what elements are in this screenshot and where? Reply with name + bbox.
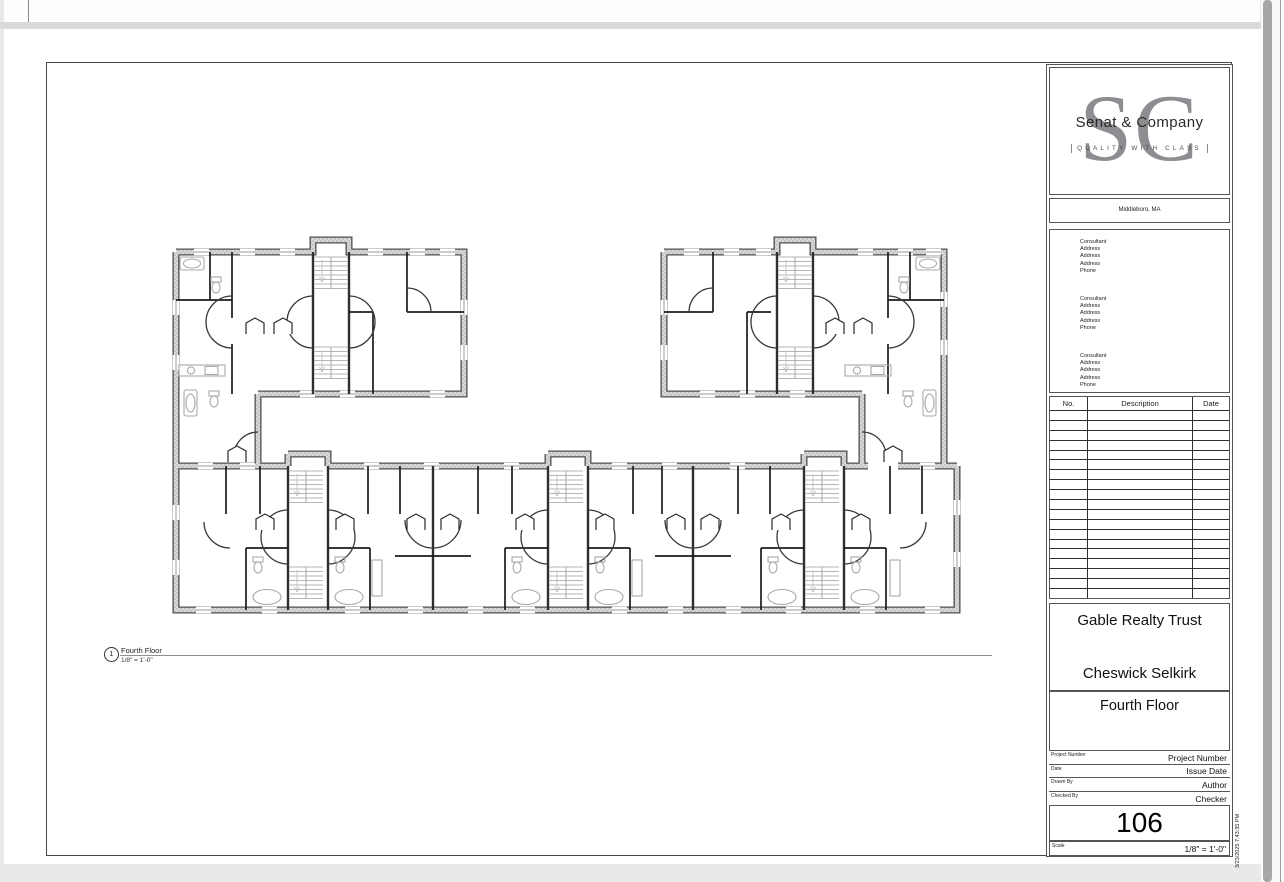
page-gap bbox=[0, 22, 1262, 29]
scrollbar-thumb[interactable] bbox=[1263, 0, 1272, 882]
revision-row bbox=[1050, 510, 1229, 520]
sheet-name: Fourth Floor bbox=[1050, 698, 1229, 714]
meta-fields: Project Number Project Number Date Issue… bbox=[1049, 751, 1230, 805]
revision-row bbox=[1050, 421, 1229, 431]
revision-row bbox=[1050, 520, 1229, 530]
client-name: Gable Realty Trust bbox=[1050, 612, 1229, 629]
scale-label: Scale bbox=[1052, 843, 1065, 849]
meta-field-value: Project Number bbox=[1168, 753, 1227, 763]
revision-row bbox=[1050, 549, 1229, 559]
view-number-bubble: 1 bbox=[104, 647, 119, 662]
company-tagline: QUALITY WITH CLASS bbox=[1071, 144, 1208, 153]
scale-value: 1/8" = 1'-0" bbox=[1185, 844, 1226, 854]
consultant-block: Consultant Address Address Address Phone bbox=[1080, 296, 1229, 332]
revision-row bbox=[1050, 559, 1229, 569]
revision-rows bbox=[1050, 411, 1229, 598]
consultant-line: Address bbox=[1080, 318, 1229, 325]
sheet-number-box: 106 bbox=[1049, 805, 1230, 841]
meta-field-value: Issue Date bbox=[1186, 766, 1227, 776]
meta-field-row: Drawn By Author bbox=[1049, 778, 1230, 792]
revision-row bbox=[1050, 540, 1229, 550]
revision-table: No. Description Date bbox=[1049, 396, 1230, 599]
company-location-box: Middleboro, MA bbox=[1049, 198, 1230, 223]
revision-row bbox=[1050, 490, 1229, 500]
meta-field-label: Checked By bbox=[1051, 793, 1078, 799]
consultant-block: Consultant Address Address Address Phone bbox=[1080, 353, 1229, 389]
meta-field-value: Author bbox=[1202, 780, 1227, 790]
consultant-line: Address bbox=[1080, 253, 1229, 260]
title-block: SC Senat & Company QUALITY WITH CLASS Mi… bbox=[1046, 64, 1233, 857]
view-title: 1 Fourth Floor 1/8" = 1'-0" bbox=[104, 643, 1004, 669]
consultant-line: Address bbox=[1080, 310, 1229, 317]
consultant-line: Address bbox=[1080, 246, 1229, 253]
logo-box: SC Senat & Company QUALITY WITH CLASS bbox=[1049, 67, 1230, 195]
consultants-box: Consultant Address Address Address Phone… bbox=[1049, 229, 1230, 393]
previous-page-border-line bbox=[28, 0, 29, 22]
company-name: Senat & Company bbox=[1050, 114, 1229, 131]
meta-field-row: Checked By Checker bbox=[1049, 792, 1230, 806]
meta-field-label: Project Number bbox=[1051, 752, 1086, 758]
project-box: Gable Realty Trust Cheswick Selkirk bbox=[1049, 603, 1230, 691]
consultant-line: Consultant bbox=[1080, 296, 1229, 303]
sheet-name-box: Fourth Floor bbox=[1049, 691, 1230, 751]
revision-row bbox=[1050, 451, 1229, 461]
revision-col-description: Description bbox=[1088, 397, 1193, 410]
consultant-line: Address bbox=[1080, 375, 1229, 382]
meta-field-label: Date bbox=[1051, 766, 1062, 772]
consultant-line: Address bbox=[1080, 261, 1229, 268]
consultant-line: Address bbox=[1080, 367, 1229, 374]
consultant-line: Consultant bbox=[1080, 239, 1229, 246]
revision-row bbox=[1050, 460, 1229, 470]
revision-col-no: No. bbox=[1050, 397, 1088, 410]
plot-timestamp: 3/23/2025 7:43:35 PM bbox=[1235, 792, 1247, 868]
meta-field-row: Project Number Project Number bbox=[1049, 751, 1230, 765]
consultant-line: Address bbox=[1080, 360, 1229, 367]
revision-row bbox=[1050, 589, 1229, 598]
consultant-line: Phone bbox=[1080, 325, 1229, 332]
revision-row bbox=[1050, 569, 1229, 579]
revision-row bbox=[1050, 530, 1229, 540]
consultant-block: Consultant Address Address Address Phone bbox=[1080, 239, 1229, 275]
revision-row bbox=[1050, 470, 1229, 480]
sheet-number: 106 bbox=[1050, 807, 1229, 839]
revision-row bbox=[1050, 480, 1229, 490]
scale-box: Scale 1/8" = 1'-0" bbox=[1049, 841, 1230, 856]
consultant-line: Consultant bbox=[1080, 353, 1229, 360]
revision-row bbox=[1050, 441, 1229, 451]
consultant-line: Phone bbox=[1080, 268, 1229, 275]
revision-row bbox=[1050, 579, 1229, 589]
revision-row bbox=[1050, 431, 1229, 441]
meta-field-value: Checker bbox=[1195, 794, 1227, 804]
previous-page-edge bbox=[4, 0, 1260, 22]
revision-table-header: No. Description Date bbox=[1050, 397, 1229, 411]
revision-row bbox=[1050, 411, 1229, 421]
viewer-edge-line bbox=[1280, 0, 1281, 882]
revision-col-date: Date bbox=[1193, 397, 1229, 410]
view-name: Fourth Floor bbox=[121, 646, 162, 655]
view-title-line bbox=[120, 655, 992, 656]
consultant-line: Phone bbox=[1080, 382, 1229, 389]
project-name: Cheswick Selkirk bbox=[1050, 665, 1229, 682]
consultant-line: Address bbox=[1080, 303, 1229, 310]
revision-row bbox=[1050, 500, 1229, 510]
viewer-canvas: { "viewer": { "scrollbar": "vertical" },… bbox=[0, 0, 1284, 882]
view-scale: 1/8" = 1'-0" bbox=[121, 657, 153, 664]
meta-field-label: Drawn By bbox=[1051, 779, 1073, 785]
company-location: Middleboro, MA bbox=[1050, 207, 1229, 213]
meta-field-row: Date Issue Date bbox=[1049, 765, 1230, 779]
